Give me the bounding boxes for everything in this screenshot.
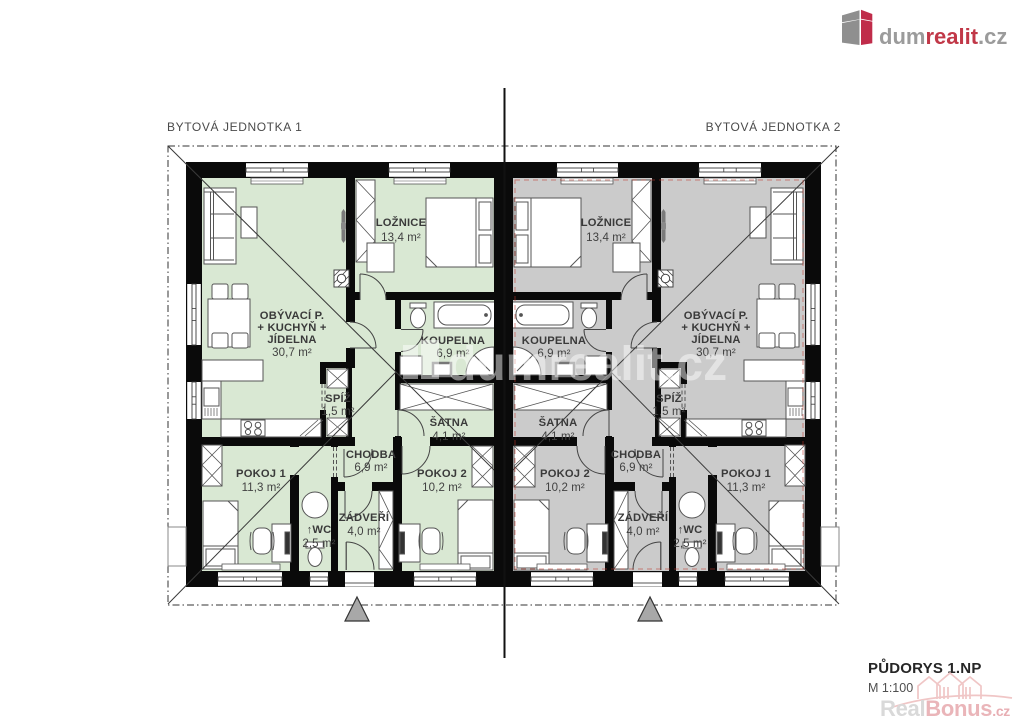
svg-text:ŠATNA: ŠATNA: [539, 416, 578, 429]
svg-text:ŠATNA: ŠATNA: [430, 416, 469, 429]
svg-text:LOŽNICE: LOŽNICE: [376, 216, 427, 229]
svg-text:BYTOVÁ JEDNOTKA 1: BYTOVÁ JEDNOTKA 1: [167, 119, 302, 134]
svg-text:4,0 m²: 4,0 m²: [347, 526, 380, 538]
svg-text:4,0 m²: 4,0 m²: [626, 526, 659, 538]
svg-text:ZÁDVEŘÍ: ZÁDVEŘÍ: [339, 511, 390, 524]
svg-text:dumrealit.cz: dumrealit.cz: [879, 24, 1007, 49]
svg-text:2,5 m²: 2,5 m²: [673, 538, 706, 550]
svg-text:13,4 m²: 13,4 m²: [586, 232, 626, 244]
svg-text:11,3 m²: 11,3 m²: [727, 482, 766, 494]
svg-text:SPÍŽ: SPÍŽ: [325, 392, 351, 405]
svg-text:4,1 m²: 4,1 m²: [541, 431, 574, 443]
svg-text:BYTOVÁ JEDNOTKA 2: BYTOVÁ JEDNOTKA 2: [706, 119, 841, 134]
svg-text:dumrealit.cz: dumrealit.cz: [447, 338, 727, 391]
svg-text:SPÍŽ: SPÍŽ: [656, 392, 682, 405]
svg-text:1,5 m²: 1,5 m²: [652, 406, 685, 418]
svg-text:PŮDORYS 1.NP: PŮDORYS 1.NP: [868, 658, 982, 677]
svg-text:CHODBA: CHODBA: [346, 449, 396, 461]
svg-text:1,5 m²: 1,5 m²: [321, 406, 354, 418]
svg-text:POKOJ 1: POKOJ 1: [236, 468, 286, 480]
svg-text:POKOJ 2: POKOJ 2: [540, 468, 590, 480]
svg-text:↑WC: ↑WC: [307, 524, 332, 536]
svg-text:10,2 m²: 10,2 m²: [422, 482, 462, 494]
svg-text:LOŽNICE: LOŽNICE: [581, 216, 632, 229]
svg-text:JÍDELNA: JÍDELNA: [267, 333, 316, 346]
svg-text:M 1:100: M 1:100: [868, 681, 913, 695]
svg-text:CHODBA: CHODBA: [611, 449, 661, 461]
svg-text:RealBonus.cz: RealBonus.cz: [880, 696, 1010, 721]
svg-text:13,4 m²: 13,4 m²: [381, 232, 421, 244]
svg-text:POKOJ 2: POKOJ 2: [417, 468, 467, 480]
svg-text:6,9 m²: 6,9 m²: [619, 462, 652, 474]
svg-text:2,5 m²: 2,5 m²: [302, 538, 335, 550]
svg-text:+ KUCHYŇ +: + KUCHYŇ +: [681, 321, 750, 334]
svg-text:10,2 m²: 10,2 m²: [545, 482, 585, 494]
svg-text:OBÝVACÍ P.: OBÝVACÍ P.: [684, 309, 748, 322]
svg-text:ZÁDVEŘÍ: ZÁDVEŘÍ: [618, 511, 669, 524]
svg-text:6,9 m²: 6,9 m²: [354, 462, 387, 474]
svg-text:30,7 m²: 30,7 m²: [272, 347, 312, 359]
svg-text:↑WC: ↑WC: [678, 524, 703, 536]
svg-text:4,1 m²: 4,1 m²: [432, 431, 465, 443]
svg-text:+ KUCHYŇ +: + KUCHYŇ +: [257, 321, 326, 334]
svg-text:OBÝVACÍ P.: OBÝVACÍ P.: [260, 309, 324, 322]
svg-text:POKOJ 1: POKOJ 1: [721, 468, 771, 480]
svg-text:11,3 m²: 11,3 m²: [242, 482, 281, 494]
